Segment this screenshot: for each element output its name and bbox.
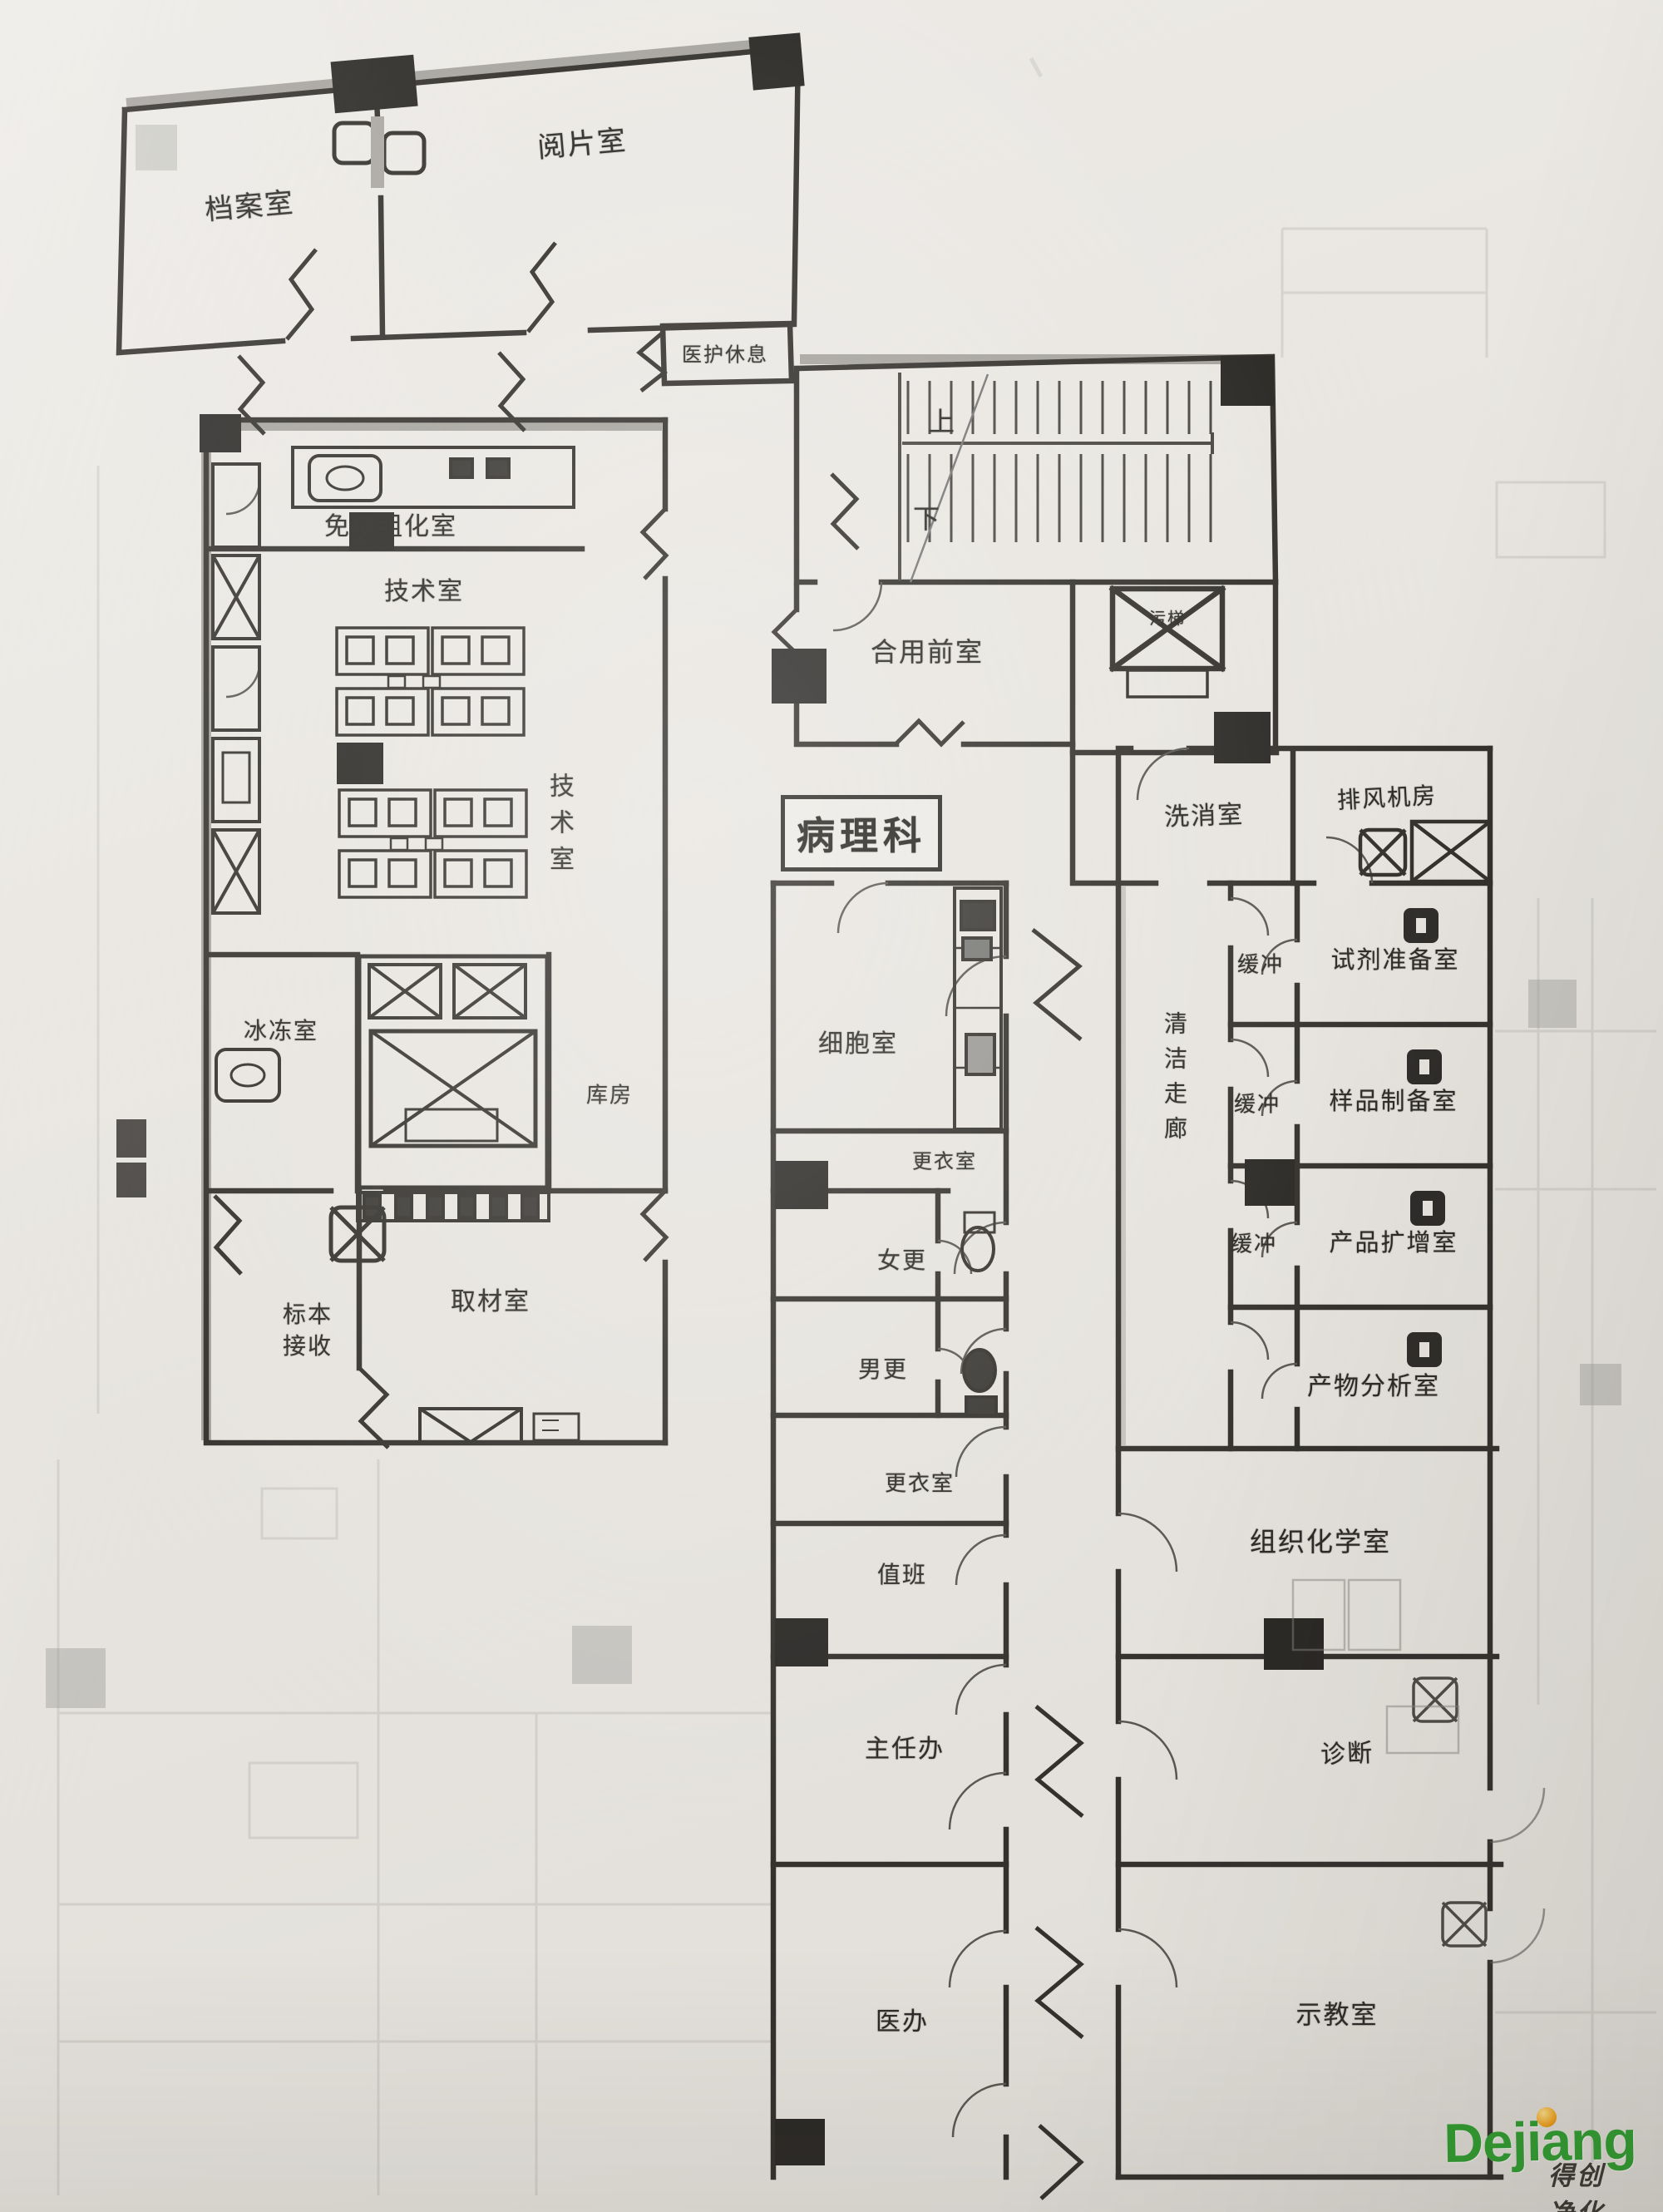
bleed-through-lines — [58, 58, 1656, 2195]
room-label-tech-room: 技术室 — [384, 570, 464, 607]
room-label-product-amplification: 产品扩增室 — [1329, 1223, 1458, 1258]
room-label-doctor-office: 医办 — [876, 2001, 929, 2037]
pass-box-icon — [334, 116, 424, 188]
room-label-director-office: 主任办 — [865, 1728, 945, 1765]
lab-bench-cluster — [337, 628, 524, 735]
sink-icon — [309, 456, 381, 501]
elevator-bank — [359, 956, 547, 1187]
room-label-exhaust-fan: 排风机房 — [1336, 778, 1438, 816]
room-label-demo: 示教室 — [1296, 1994, 1379, 2032]
room-label-product-analysis: 产物分析室 — [1307, 1365, 1440, 1402]
room-label-buffer-2: 缓冲 — [1234, 1088, 1281, 1118]
watermark-dot — [1537, 2107, 1557, 2127]
toilet-icon — [962, 1212, 996, 1415]
room-label-female-changing: 女更 — [877, 1242, 927, 1276]
watermark-company: 得创净化 — [1548, 2155, 1625, 2212]
walls — [119, 47, 1501, 2177]
room-label-diagnosis: 诊断 — [1320, 1732, 1374, 1770]
sink-icon — [216, 1049, 279, 1101]
room-label-grossing: 取材室 — [451, 1281, 530, 1317]
room-label-buffer-3: 缓冲 — [1231, 1227, 1277, 1258]
room-label-staff-rest: 医护休息 — [682, 338, 768, 368]
room-label-buffer-1: 缓冲 — [1237, 948, 1284, 979]
room-label-tech-room-vertical: 技术室 — [540, 773, 577, 882]
room-label-film-reading: 阅片室 — [535, 117, 629, 165]
pcr-pass-box-icons — [1404, 908, 1445, 1367]
room-label-storage: 库房 — [586, 1079, 633, 1109]
shaft-x-icon — [213, 830, 259, 913]
gray-wall-bands — [126, 41, 1271, 1445]
lab-bench-cluster — [339, 790, 526, 897]
room-label-shared-anteroom: 合用前室 — [871, 631, 984, 669]
hatched-wall-strip — [358, 1192, 549, 1221]
room-label-male-changing: 男更 — [858, 1351, 908, 1385]
hatched-wall-strip — [420, 1409, 579, 1442]
cell-room-bench — [955, 888, 1001, 1129]
room-label-archive: 档案室 — [203, 180, 296, 228]
shaft-x-icon — [1414, 1678, 1486, 1946]
room-label-changing-bottom: 更衣室 — [885, 1467, 955, 1498]
room-label-duty: 值班 — [877, 1557, 927, 1590]
room-label-cell-room: 细胞室 — [818, 1023, 898, 1059]
stair-down-label: 下 — [913, 498, 941, 536]
room-label-sample-prep: 样品制备室 — [1329, 1082, 1458, 1117]
department-title: 病理科 — [781, 795, 942, 871]
room-label-washing: 洗消室 — [1163, 793, 1244, 832]
shaft-x-icon — [1360, 822, 1490, 881]
room-label-immunohistochemistry: 免疫组化室 — [324, 506, 457, 542]
room-label-changing-top: 更衣室 — [912, 1145, 977, 1174]
shaft-x-icon — [213, 555, 259, 639]
room-label-dirty-elevator: 污梯 — [1149, 605, 1186, 630]
corridor-label-clean: 清洁走廊 — [1157, 1011, 1191, 1151]
room-label-histochemistry: 组织化学室 — [1250, 1521, 1391, 1559]
room-label-reagent-prep: 试剂准备室 — [1330, 941, 1459, 975]
stair-up-label: 上 — [928, 401, 956, 439]
floorplan-photo: 档案室 阅片室 医护休息 上 下 合用前室 污梯 病理科 洗消室 排风机房 免疫… — [0, 0, 1663, 2212]
room-label-frozen: 冰冻室 — [244, 1013, 318, 1046]
room-label-specimen-receiving: 标本接收 — [280, 1299, 335, 1362]
